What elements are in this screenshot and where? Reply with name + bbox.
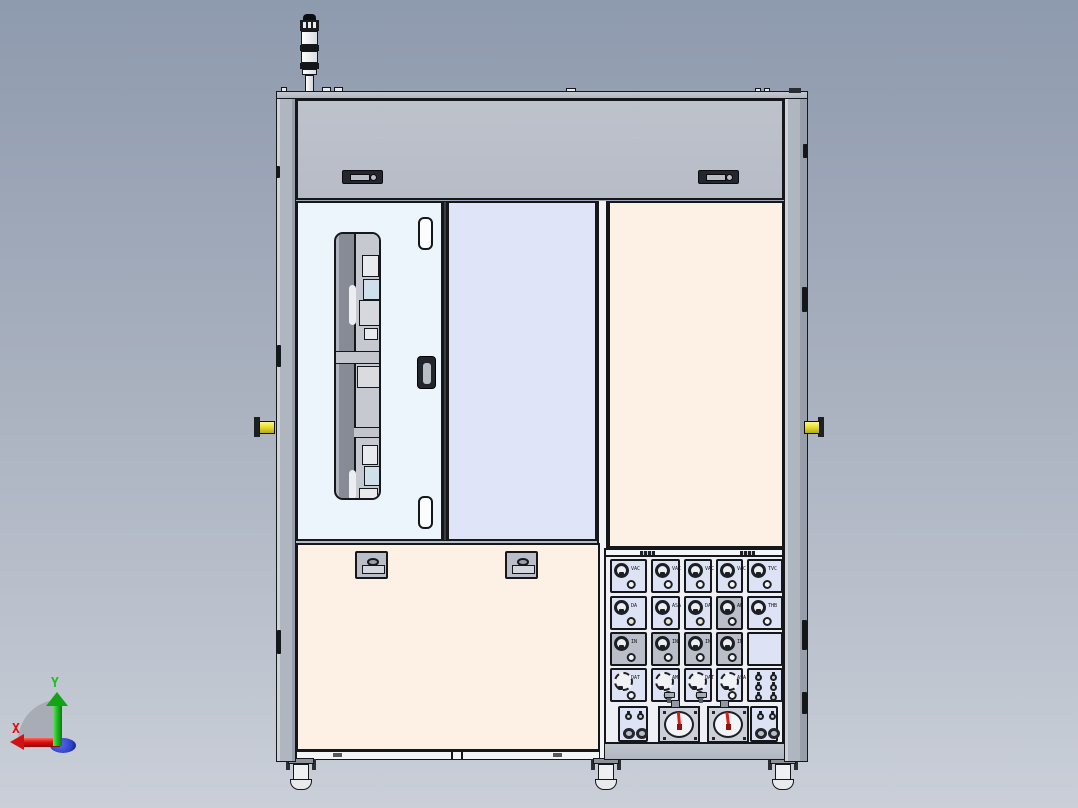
regulator-dot	[696, 653, 705, 662]
regulator-knob[interactable]	[655, 563, 670, 578]
pressure-gauge	[707, 706, 749, 743]
air-fitting-large	[636, 728, 648, 739]
y-axis-label: Y	[51, 676, 59, 691]
leveling-foot	[286, 758, 316, 794]
air-fitting	[755, 684, 762, 691]
regulator-dot	[763, 580, 772, 589]
knob-notch	[724, 686, 729, 690]
gauge-screws	[663, 711, 666, 714]
blank-cell	[747, 632, 783, 666]
fitting-panel	[750, 706, 778, 742]
door-hinge-top	[418, 217, 433, 250]
stack-light	[299, 13, 321, 93]
regulator-module: VAC	[716, 559, 743, 593]
frame-slot	[802, 692, 807, 714]
stack-light-dome	[300, 20, 319, 31]
regulator-knob[interactable]	[751, 600, 766, 615]
regulator-dot	[727, 691, 736, 700]
top-mount-tab	[566, 88, 576, 92]
regulator-knob[interactable]	[614, 600, 629, 615]
regulator-module: IN	[651, 632, 680, 666]
rotation-sector	[18, 700, 58, 742]
frame-slot	[277, 345, 281, 367]
knob-notch	[725, 609, 730, 613]
regulator-module: IN	[684, 632, 712, 666]
regulator-label: VAC	[631, 566, 640, 572]
knob-notch	[619, 645, 624, 649]
air-fitting-large	[755, 728, 767, 739]
regulator-label: VAC	[737, 566, 746, 572]
regulator-knob[interactable]	[751, 563, 766, 578]
gauge-stem	[720, 700, 729, 708]
regulator-label: DAT	[631, 675, 640, 681]
air-fitting	[770, 694, 777, 701]
lift-handle-left-grip[interactable]	[259, 421, 275, 434]
regulator-dot	[626, 580, 635, 589]
regulator-knob[interactable]	[720, 563, 735, 578]
regulator-dot	[763, 617, 772, 626]
knob-notch	[618, 686, 623, 690]
regulator-label: ASA	[737, 675, 746, 681]
gauge-dial	[713, 711, 743, 738]
door-window	[334, 232, 381, 500]
top-mount-tab	[322, 87, 331, 92]
y-axis-arrow[interactable]	[53, 706, 62, 746]
regulator-module: ASA	[716, 668, 743, 702]
top-panel	[296, 99, 784, 200]
air-fitting-large	[768, 728, 780, 739]
panel-top-strip	[606, 550, 782, 557]
regulator-dot	[727, 617, 736, 626]
regulator-module: AB	[716, 596, 743, 630]
x-axis-label: X	[12, 722, 20, 737]
regulator-dot	[626, 653, 635, 662]
regulator-knob[interactable]	[688, 600, 703, 615]
knob-notch	[756, 572, 761, 576]
regulator-module: VAC	[651, 559, 680, 593]
top-panel-handle[interactable]	[342, 170, 383, 184]
air-fitting	[757, 713, 764, 720]
regulator-module: VAC	[684, 559, 712, 593]
middle-door[interactable]	[447, 201, 597, 541]
fitting-panel	[618, 706, 648, 742]
gauge-hub	[726, 724, 731, 730]
regulator-label: IN	[737, 639, 743, 645]
knob-notch	[659, 686, 664, 690]
regulator-module: DAT	[684, 668, 712, 702]
leveling-foot	[768, 758, 798, 794]
knob-notch	[660, 572, 665, 576]
regulator-module: DA	[610, 596, 647, 630]
regulator-dot	[663, 653, 672, 662]
knob-notch	[619, 572, 624, 576]
mechanism-crossbar	[336, 351, 381, 364]
regulator-label: DA	[631, 603, 637, 609]
top-mount-tab	[755, 88, 761, 92]
regulator-dot	[626, 617, 635, 626]
frame-slot	[276, 166, 280, 178]
regulator-knob[interactable]	[614, 563, 629, 578]
knob-notch	[756, 609, 761, 613]
door-handle[interactable]	[417, 356, 436, 389]
air-fitting	[755, 674, 762, 681]
gauge-hub	[677, 724, 682, 730]
kick-split	[451, 751, 453, 760]
air-fitting	[770, 674, 777, 681]
regulator-knob[interactable]	[688, 636, 703, 651]
kick-vent	[333, 753, 342, 757]
knob-notch	[725, 645, 730, 649]
regulator-module: IN	[610, 632, 647, 666]
regulator-label: ASA	[672, 603, 681, 609]
regulator-dot	[663, 580, 672, 589]
top-mount-tab	[334, 87, 343, 92]
regulator-dot	[696, 580, 705, 589]
regulator-label: IN	[631, 639, 637, 645]
frame-slot	[802, 287, 807, 312]
frame-slot	[803, 144, 808, 158]
regulator-module: ASA	[651, 596, 680, 630]
regulator-dot	[663, 617, 672, 626]
regulator-label: AM	[672, 675, 678, 681]
air-fitting	[637, 713, 644, 720]
regulator-dot	[727, 653, 736, 662]
right-panel	[608, 201, 784, 548]
regulator-label: VAC	[705, 566, 714, 572]
regulator-knob[interactable]	[688, 563, 703, 578]
regulator-label: TVC	[768, 566, 777, 572]
regulator-dot	[626, 691, 635, 700]
stack-light-segment	[301, 31, 318, 45]
cabinet-top-edge	[276, 91, 808, 99]
y-axis-arrowhead[interactable]	[46, 692, 68, 706]
lift-handle-right-grip[interactable]	[804, 421, 820, 434]
panel-hinge	[640, 551, 655, 555]
air-fitting	[625, 713, 632, 720]
regulator-module: DA	[684, 596, 712, 630]
regulator-label: DA	[705, 603, 711, 609]
window-mechanism	[339, 234, 354, 500]
gauge-stem	[671, 700, 680, 708]
gauge-screws	[712, 711, 715, 714]
frame-left	[276, 98, 296, 762]
door-hinge-bottom	[418, 496, 433, 529]
cad-viewport: VACDAINDATVACASAINAMVACDAINDATVACABINASA…	[0, 0, 1078, 808]
knob-notch	[693, 572, 698, 576]
base-strip-right	[604, 743, 806, 760]
regulator-module: VAC	[610, 559, 647, 593]
regulator-label: VAC	[672, 566, 681, 572]
knob-notch	[693, 645, 698, 649]
regulator-module: DAT	[610, 668, 647, 702]
knob-notch	[692, 686, 697, 690]
pneumatic-panel: VACDAINDATVACASAINAMVACDAINDATVACABINASA…	[604, 548, 784, 744]
regulator-knob[interactable]	[614, 636, 629, 651]
regulator-knob[interactable]	[655, 636, 670, 651]
knob-notch	[693, 609, 698, 613]
regulator-label: THB	[768, 603, 777, 609]
regulator-dot	[696, 617, 705, 626]
knob-notch	[619, 609, 624, 613]
bottom-access-panel	[296, 543, 600, 751]
regulator-knob[interactable]	[655, 600, 670, 615]
frame-slot	[277, 630, 281, 654]
pressure-gauge	[658, 706, 700, 743]
regulator-module: TVC	[747, 559, 783, 593]
regulator-module: AM	[651, 668, 680, 702]
frame-slot	[802, 620, 807, 650]
axis-triad[interactable]: X Y	[10, 676, 110, 768]
fitting-block	[747, 668, 783, 702]
air-fitting	[755, 694, 762, 701]
panel-hinge	[740, 551, 755, 555]
air-fitting-large	[623, 728, 635, 739]
valve-stem	[699, 698, 703, 703]
top-mount-tab	[281, 87, 287, 92]
air-fitting	[769, 713, 776, 720]
regulator-label: IN	[672, 639, 678, 645]
regulator-label: AB	[737, 603, 743, 609]
gauge-dial	[664, 711, 694, 738]
top-panel-handle[interactable]	[698, 170, 739, 184]
stack-light-segment	[301, 51, 318, 63]
top-mount-tab	[764, 88, 770, 92]
kick-vent	[553, 753, 562, 757]
kick-split	[461, 751, 463, 760]
leveling-foot	[591, 758, 621, 794]
knob-notch	[660, 609, 665, 613]
air-fitting	[770, 684, 777, 691]
panel-latch[interactable]	[505, 551, 538, 579]
regulator-module: THB	[747, 596, 783, 630]
regulator-label: IN	[705, 639, 711, 645]
regulator-label: DAT	[705, 675, 714, 681]
regulator-knob[interactable]	[720, 600, 735, 615]
knob-notch	[725, 572, 730, 576]
top-corner-cap	[789, 88, 801, 93]
regulator-dot	[727, 580, 736, 589]
regulator-knob[interactable]	[720, 636, 735, 651]
regulator-module: IN	[716, 632, 743, 666]
knob-notch	[660, 645, 665, 649]
panel-latch[interactable]	[355, 551, 388, 579]
